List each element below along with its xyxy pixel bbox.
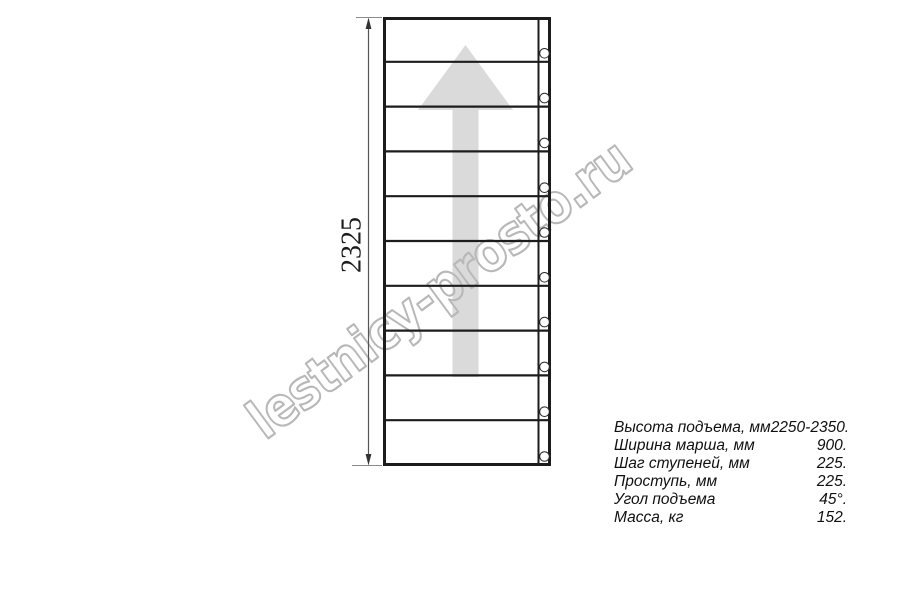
fastener-hole <box>540 228 550 238</box>
spec-row: Высота подъема, мм 2250-2350. <box>614 419 847 437</box>
dimension-arrowhead-up-icon <box>366 18 372 30</box>
spec-label: Шаг ступеней, мм <box>614 455 750 473</box>
fastener-hole <box>540 273 550 283</box>
fastener-hole <box>540 317 550 327</box>
fastener-hole <box>540 49 550 59</box>
spec-value: 2250-2350. <box>771 419 849 437</box>
spec-label: Масса, кг <box>614 509 683 527</box>
spec-label: Ширина марша, мм <box>614 437 755 455</box>
spec-row: Угол подъема 45°. <box>614 491 847 509</box>
spec-label: Угол подъема <box>614 491 715 509</box>
fastener-holes <box>540 49 550 462</box>
fastener-hole <box>540 452 550 462</box>
spec-value: 225. <box>817 473 847 491</box>
watermark-text: lestnicy-prosto.ru <box>235 127 642 451</box>
spec-value: 152. <box>817 509 847 527</box>
fastener-hole <box>540 362 550 372</box>
spec-row: Проступь, мм 225. <box>614 473 847 491</box>
dimension-arrowhead-down-icon <box>366 454 372 466</box>
specs-table: Высота подъема, мм 2250-2350. Ширина мар… <box>614 419 847 527</box>
fastener-hole <box>540 93 550 103</box>
spec-row: Ширина марша, мм 900. <box>614 437 847 455</box>
fastener-hole <box>540 138 550 148</box>
spec-value: 45°. <box>819 491 847 509</box>
spec-value: 900. <box>817 437 847 455</box>
spec-value: 225. <box>817 455 847 473</box>
fastener-hole <box>540 407 550 417</box>
spec-row: Масса, кг 152. <box>614 509 847 527</box>
dimension-value: 2325 <box>337 217 368 273</box>
spec-label: Проступь, мм <box>614 473 717 491</box>
spec-label: Высота подъема, мм <box>614 419 771 437</box>
fastener-hole <box>540 183 550 193</box>
spec-row: Шаг ступеней, мм 225. <box>614 455 847 473</box>
